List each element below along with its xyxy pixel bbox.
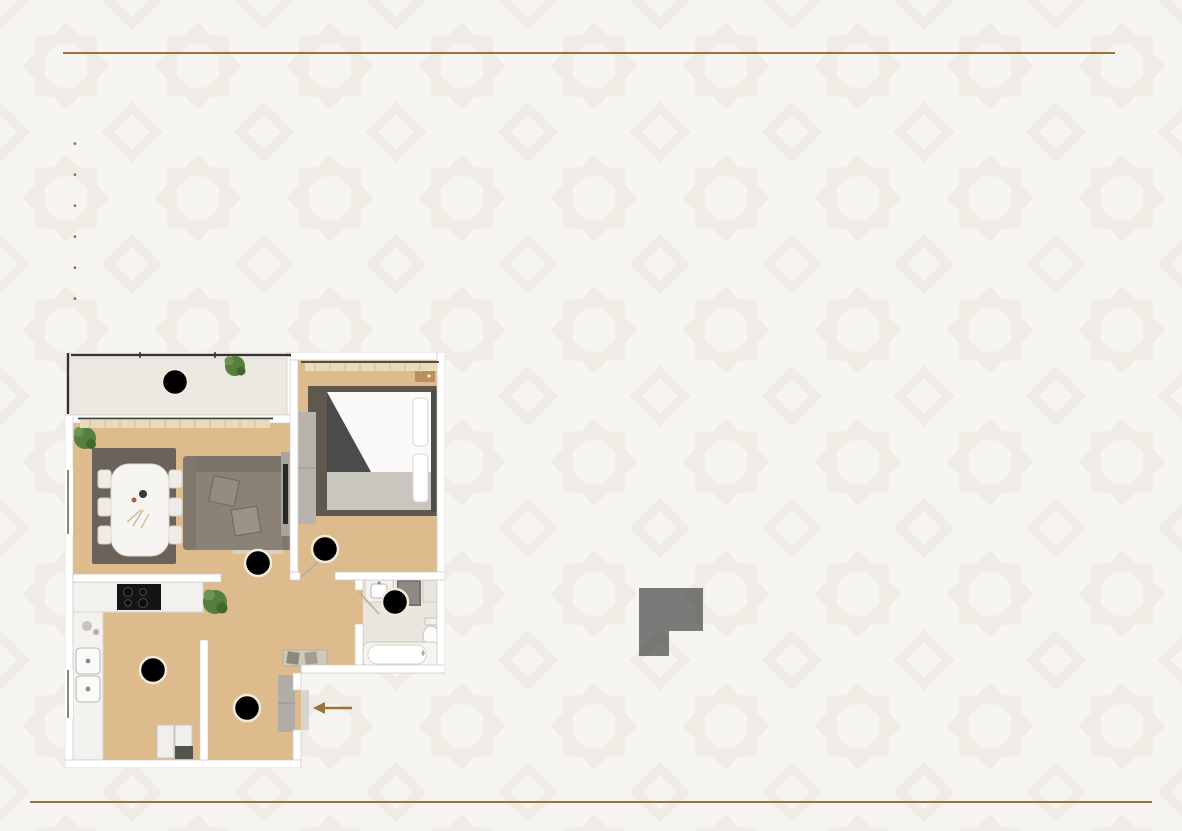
legend-item: [72, 184, 78, 215]
brochure-page: [0, 0, 1182, 831]
legend-item: [72, 246, 78, 277]
building-key-plan: [635, 583, 1095, 775]
legend-item: [72, 277, 78, 308]
bedroom-furniture: [298, 364, 439, 524]
dining-table: [111, 464, 169, 556]
entry-arrow-icon: [313, 702, 352, 714]
room-legend: [72, 122, 78, 308]
badge-kitchen: [140, 657, 166, 683]
floor-plan-3d-render: [555, 55, 1075, 580]
floor-plan-2d: [65, 352, 445, 768]
legend-item: [72, 153, 78, 184]
closet-door: [157, 725, 174, 758]
badge-bathroom: [382, 589, 408, 615]
cooktop: [117, 584, 161, 610]
toilet: [425, 618, 438, 625]
key-plan-walls: [636, 584, 1094, 772]
badge-bedroom: [312, 536, 338, 562]
bottom-divider: [30, 801, 1152, 803]
badge-hallway: [234, 695, 260, 721]
legend-item: [72, 215, 78, 246]
badge-living: [245, 550, 271, 576]
badge-loggia: [162, 369, 188, 395]
title-divider: [63, 52, 1115, 54]
unit-highlight: [639, 588, 703, 656]
legend-item: [72, 122, 78, 153]
